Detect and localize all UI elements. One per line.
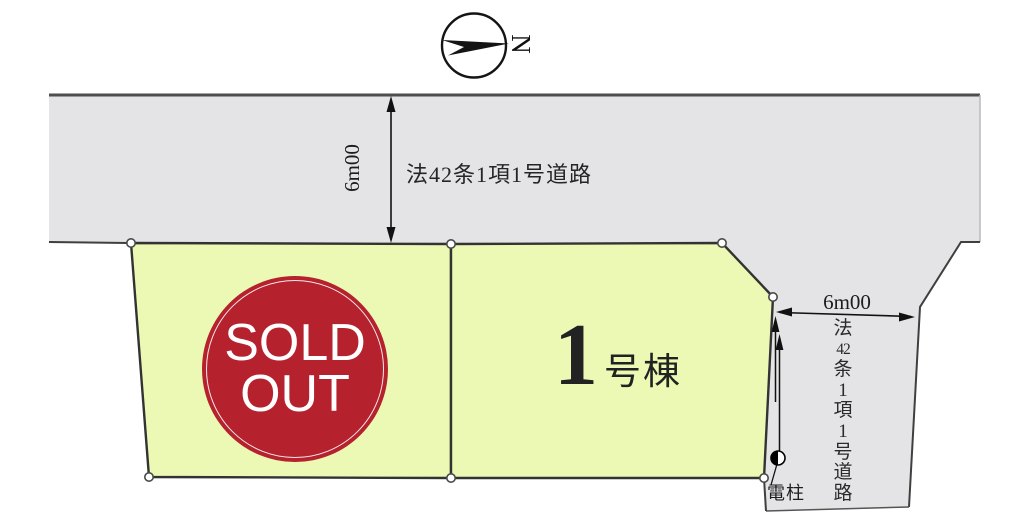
side-road-label: 法 42 条 1 項 1 号 道 路: [827, 319, 859, 504]
side-road-label-char: 道: [827, 463, 859, 484]
side-road-label-char: 法: [827, 319, 859, 340]
side-road-label-char: 条: [827, 360, 859, 381]
site-plan: 法42条1項1号道路 6m00 6m00 法 42 条 1 項 1 号 道 路 …: [0, 0, 1024, 529]
side-road-label-char: 路: [827, 484, 859, 505]
sold-out-line1: SOLD: [224, 318, 366, 369]
side-road-label-char: 42: [827, 340, 859, 361]
side-road-label-char: 1: [827, 422, 859, 443]
lot1-label: 1 号棟: [554, 316, 682, 395]
pole-label: 電柱: [767, 479, 805, 505]
sold-out-badge: SOLD OUT: [202, 276, 388, 462]
lot1-suffix: 号棟: [604, 354, 682, 391]
road-bottom-border-left-segment: [49, 242, 131, 243]
plan-geometry: [0, 0, 1024, 529]
compass-icon: [442, 14, 509, 78]
sold-out-line2: OUT: [240, 369, 350, 420]
top-road-width-dim: 6m00: [340, 128, 364, 208]
side-road-label-char: 1: [827, 381, 859, 402]
side-road-label-char: 号: [827, 443, 859, 464]
lot1-number: 1: [554, 316, 598, 395]
top-road-label: 法42条1項1号道路: [406, 157, 592, 189]
compass-north-label: N: [506, 29, 536, 59]
side-road-width-dim: 6m00: [816, 290, 878, 315]
side-road-label-char: 項: [827, 401, 859, 422]
